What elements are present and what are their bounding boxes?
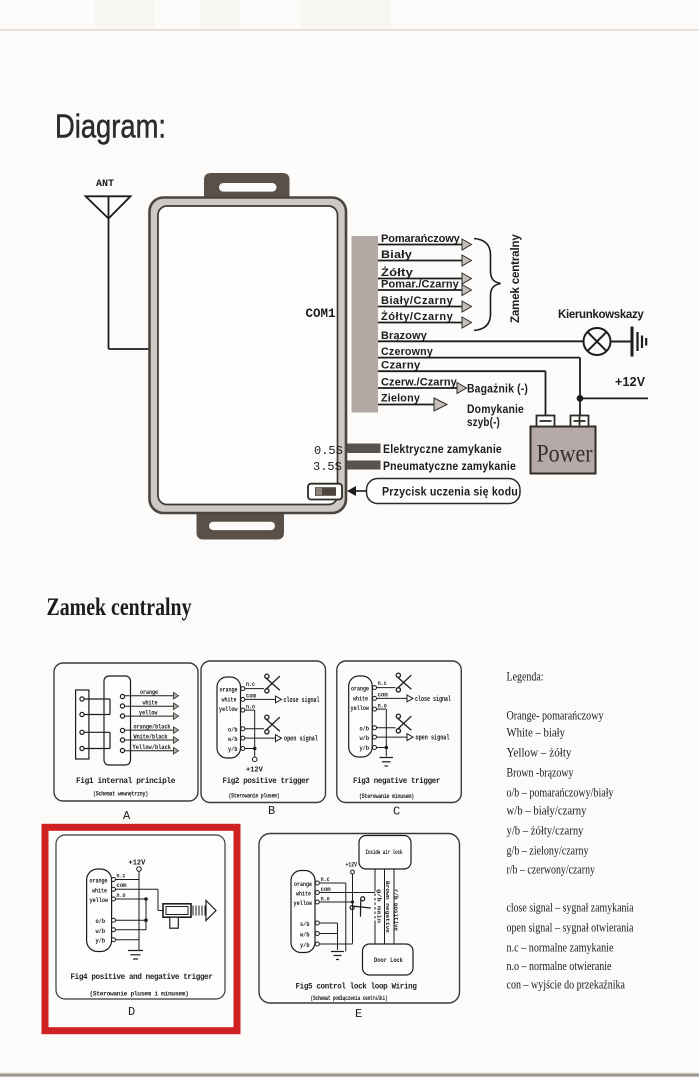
svg-text:open signal: open signal — [416, 735, 450, 743]
svg-text:Biały/Czarny: Biały/Czarny — [381, 295, 454, 307]
svg-text:Wnite/black: Wnite/black — [134, 733, 168, 740]
svg-text:n.o: n.o — [117, 892, 126, 899]
svg-text:(Sterowanie plusem): (Sterowanie plusem) — [229, 793, 280, 800]
svg-text:y/b: y/b — [96, 938, 106, 945]
svg-text:Inside air lock: Inside air lock — [366, 849, 403, 856]
svg-text:w/b: w/b — [96, 928, 106, 935]
svg-text:close signal: close signal — [284, 697, 320, 705]
svg-text:Diagram:: Diagram: — [55, 108, 166, 145]
svg-text:n.o – normalne otwieranie: n.o – normalne otwieranie — [507, 959, 612, 973]
svg-text:Brown negative: Brown negative — [384, 881, 391, 934]
svg-text:yellow: yellow — [139, 709, 158, 716]
svg-text:White – biały: White – biały — [507, 726, 566, 740]
svg-text:white: white — [143, 700, 158, 707]
svg-text:Bagażnik (-): Bagażnik (-) — [467, 384, 528, 396]
svg-text:yellow: yellow — [294, 900, 313, 907]
svg-text:Legenda:: Legenda: — [507, 670, 544, 684]
svg-text:Pomar./Czarny: Pomar./Czarny — [381, 279, 460, 291]
svg-text:y/b: y/b — [300, 942, 310, 949]
svg-text:Brązowy: Brązowy — [381, 330, 428, 342]
svg-text:o/b: o/b — [360, 725, 370, 732]
svg-text:open signal – sygnał otwierani: open signal – sygnał otwierania — [507, 921, 634, 935]
svg-text:Czerowny: Czerowny — [381, 346, 434, 358]
svg-text:Żółty: Żółty — [381, 266, 414, 279]
svg-text:A: A — [123, 809, 131, 823]
svg-text:Elektryczne zamykanie: Elektryczne zamykanie — [383, 444, 502, 456]
svg-text:E: E — [355, 1007, 362, 1021]
svg-text:w/b: w/b — [360, 735, 370, 742]
svg-text:szyb(-): szyb(-) — [467, 417, 500, 429]
svg-text:0.5S: 0.5S — [314, 444, 343, 458]
svg-text:Fig3 negative trigger: Fig3 negative trigger — [353, 776, 440, 786]
svg-text:y/b: y/b — [228, 746, 238, 753]
svg-text:Czarny: Czarny — [381, 360, 421, 372]
svg-text:close signal – sygnał zamykani: close signal – sygnał zamykania — [507, 901, 634, 915]
svg-text:n.c: n.c — [117, 872, 126, 879]
svg-text:Domykanie: Domykanie — [467, 404, 524, 416]
svg-text:orange: orange — [294, 881, 312, 888]
svg-text:+12V: +12V — [346, 862, 358, 869]
svg-text:w/b – biały/czarny: w/b – biały/czarny — [507, 804, 588, 818]
svg-text:+12V: +12V — [246, 767, 264, 775]
svg-text:ANT: ANT — [96, 179, 114, 190]
svg-text:w/b: w/b — [228, 736, 238, 743]
svg-text:com: com — [378, 692, 388, 699]
svg-text:orange: orange — [90, 878, 108, 885]
svg-text:close signal: close signal — [415, 696, 451, 704]
svg-text:Power: Power — [537, 441, 594, 468]
svg-text:white: white — [353, 695, 368, 702]
svg-text:yellow: yellow — [219, 706, 238, 713]
svg-text:n.c: n.c — [246, 681, 255, 688]
svg-text:Pomarańczowy: Pomarańczowy — [381, 233, 461, 245]
svg-text:orange: orange — [351, 685, 369, 692]
svg-text:Zielony: Zielony — [381, 393, 421, 405]
svg-text:Zamek centralny: Zamek centralny — [47, 592, 192, 621]
svg-text:Żółty/Czarny: Żółty/Czarny — [381, 310, 454, 323]
svg-text:y/b: y/b — [360, 745, 370, 752]
svg-text:n.o: n.o — [321, 896, 330, 903]
svg-text:con – wyjście do przekaźnika: con – wyjście do przekaźnika — [507, 978, 626, 992]
svg-text:Kierunkowskazy: Kierunkowskazy — [558, 309, 644, 321]
svg-text:Yellow – żółty: Yellow – żółty — [507, 746, 573, 760]
svg-text:Biały: Biały — [381, 249, 413, 261]
svg-text:white: white — [222, 696, 237, 703]
svg-text:(Sterowanie minusem): (Sterowanie minusem) — [359, 793, 414, 800]
svg-text:g/b – zielony/czarny: g/b – zielony/czarny — [507, 844, 590, 858]
svg-text:+12V: +12V — [129, 860, 147, 868]
svg-text:s/b: s/b — [300, 921, 310, 928]
svg-text:com: com — [321, 886, 331, 893]
svg-text:white: white — [296, 891, 311, 898]
svg-text:y/b – żółty/czarny: y/b – żółty/czarny — [507, 824, 585, 838]
svg-text:Fig4 positive and negative tri: Fig4 positive and negative trigger — [71, 972, 213, 982]
svg-text:Czerw./Czarny: Czerw./Czarny — [381, 377, 458, 389]
svg-text:Przycisk uczenia się kodu: Przycisk uczenia się kodu — [382, 487, 518, 499]
svg-text:B: B — [268, 804, 275, 818]
svg-text:n.c: n.c — [321, 876, 330, 883]
svg-text:r/b positive: r/b positive — [393, 889, 400, 932]
svg-text:n.c – normalne zamykanie: n.c – normalne zamykanie — [507, 941, 614, 955]
svg-text:Zamek centralny: Zamek centralny — [510, 234, 522, 323]
svg-text:yellow: yellow — [351, 705, 370, 712]
svg-text:o/b: o/b — [228, 726, 238, 733]
svg-text:r/b – czerwony/czarny: r/b – czerwony/czarny — [507, 863, 596, 877]
svg-text:(Sterowanie plusem i minusem): (Sterowanie plusem i minusem) — [90, 991, 189, 998]
svg-text:w/b: w/b — [300, 932, 310, 939]
svg-text:3.5S: 3.5S — [313, 460, 342, 474]
svg-text:orange/black: orange/black — [134, 723, 171, 730]
svg-text:Fig2 positive trigger: Fig2 positive trigger — [223, 776, 310, 786]
svg-text:Yellow/black: Yellow/black — [133, 744, 172, 751]
svg-text:C: C — [393, 805, 400, 819]
svg-text:(Schemat podłączenia centralki: (Schemat podłączenia centralki) — [311, 995, 388, 1002]
svg-text:yellow: yellow — [90, 897, 109, 904]
svg-text:n.o: n.o — [378, 703, 387, 710]
svg-text:white: white — [92, 887, 107, 894]
svg-text:(Schemat wewnętrzny): (Schemat wewnętrzny) — [93, 791, 148, 798]
svg-text:+12V: +12V — [615, 375, 646, 389]
svg-text:orange: orange — [140, 689, 158, 696]
svg-text:Pneumatyczne zamykanie: Pneumatyczne zamykanie — [383, 461, 516, 473]
svg-text:Orange- pomarańczowy: Orange- pomarańczowy — [507, 709, 605, 723]
svg-text:com: com — [246, 693, 256, 700]
svg-text:Brown -brązowy: Brown -brązowy — [507, 766, 575, 780]
svg-text:Door Lock: Door Lock — [374, 957, 403, 964]
svg-text:g/b main: g/b main — [376, 889, 383, 924]
svg-text:D: D — [128, 1005, 135, 1019]
svg-text:com: com — [117, 882, 127, 889]
svg-text:Fig1 internal principle: Fig1 internal principle — [76, 776, 175, 786]
svg-text:o/b: o/b — [96, 918, 106, 925]
svg-text:o/b – pomarańczowy/biały: o/b – pomarańczowy/biały — [507, 786, 615, 800]
svg-text:open signal: open signal — [284, 736, 318, 744]
svg-text:n.o: n.o — [246, 704, 255, 711]
svg-text:n.c: n.c — [378, 680, 387, 687]
svg-text:orange: orange — [220, 686, 238, 693]
svg-text:COM1: COM1 — [306, 307, 336, 321]
svg-text:Fig5 control lock loop Wiring: Fig5 control lock loop Wiring — [296, 982, 417, 992]
